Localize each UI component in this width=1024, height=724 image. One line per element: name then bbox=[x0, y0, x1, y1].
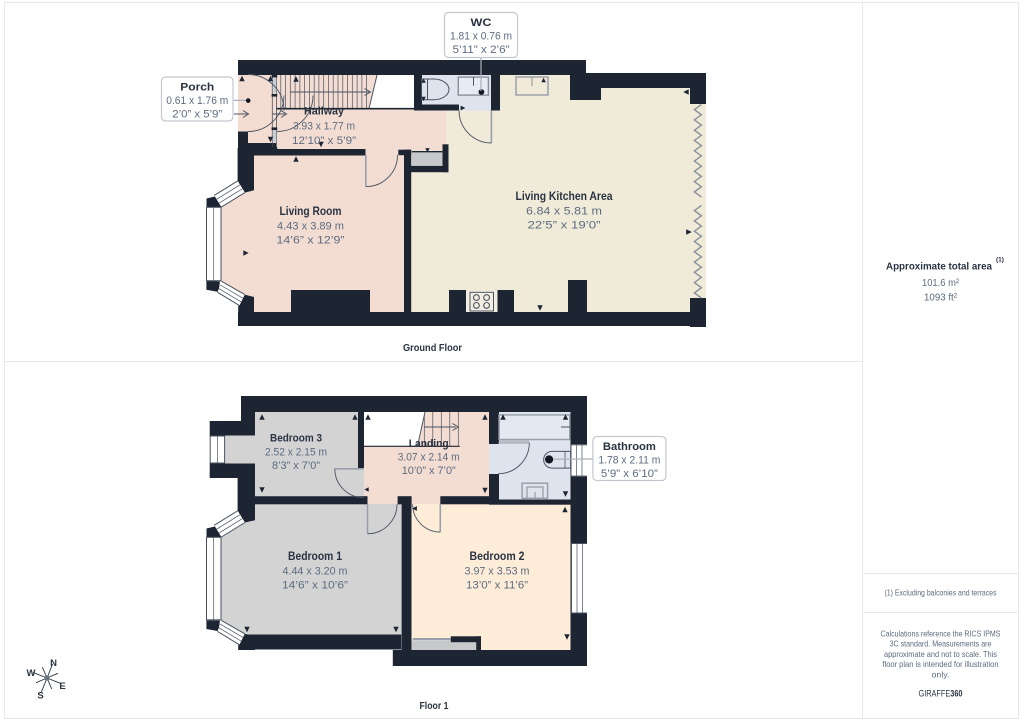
svg-text:22’5” x 19’0”: 22’5” x 19’0” bbox=[528, 220, 601, 232]
svg-text:3.97 x 3.53 m: 3.97 x 3.53 m bbox=[465, 566, 530, 578]
svg-text:2.52 x 2.15 m: 2.52 x 2.15 m bbox=[265, 447, 327, 459]
svg-text:Landing: Landing bbox=[409, 438, 449, 450]
svg-text:Bedroom 2: Bedroom 2 bbox=[470, 551, 525, 563]
svg-text:5’9” x 6’10”: 5’9” x 6’10” bbox=[601, 468, 658, 480]
svg-text:N: N bbox=[50, 658, 57, 669]
svg-text:13’0” x 11’6”: 13’0” x 11’6” bbox=[466, 580, 528, 592]
svg-text:3.93 x 1.77 m: 3.93 x 1.77 m bbox=[293, 121, 355, 133]
svg-text:5’11” x 2’6”: 5’11” x 2’6” bbox=[453, 44, 510, 56]
svg-text:(1): (1) bbox=[996, 257, 1004, 264]
svg-text:4.44 x 3.20 m: 4.44 x 3.20 m bbox=[283, 566, 348, 578]
svg-text:Floor 1: Floor 1 bbox=[420, 700, 449, 712]
svg-text:(1) Excluding balconies and te: (1) Excluding balconies and terraces bbox=[885, 589, 997, 598]
svg-text:1093 ft²: 1093 ft² bbox=[924, 293, 958, 304]
svg-text:Bedroom 1: Bedroom 1 bbox=[288, 551, 343, 563]
svg-text:approximate and not to scale.: approximate and not to scale. This bbox=[884, 649, 997, 659]
svg-text:Approximate total area: Approximate total area bbox=[886, 262, 992, 273]
svg-text:1.78 x 2.11 m: 1.78 x 2.11 m bbox=[598, 455, 660, 467]
svg-text:GIRAFFE360: GIRAFFE360 bbox=[919, 689, 963, 699]
svg-text:1.81 x 0.76 m: 1.81 x 0.76 m bbox=[450, 31, 512, 43]
svg-text:Porch: Porch bbox=[180, 82, 214, 94]
svg-text:12’10” x 5’9”: 12’10” x 5’9” bbox=[292, 135, 356, 147]
svg-text:8’3” x 7’0”: 8’3” x 7’0” bbox=[272, 460, 320, 472]
svg-text:10’0” x 7’0”: 10’0” x 7’0” bbox=[402, 465, 456, 477]
svg-text:Bedroom 3: Bedroom 3 bbox=[270, 433, 322, 445]
svg-text:Bathroom: Bathroom bbox=[603, 441, 656, 453]
svg-text:0.61 x 1.76 m: 0.61 x 1.76 m bbox=[166, 95, 228, 107]
svg-text:Ground Floor: Ground Floor bbox=[403, 342, 462, 354]
svg-text:2’0” x 5’9”: 2’0” x 5’9” bbox=[172, 109, 222, 121]
svg-text:101.6 m²: 101.6 m² bbox=[922, 278, 960, 289]
svg-text:floor plan is intended for ill: floor plan is intended for illustration bbox=[883, 659, 999, 669]
svg-text:14’6” x 12’9”: 14’6” x 12’9” bbox=[277, 235, 345, 247]
svg-text:Living Room: Living Room bbox=[280, 206, 342, 218]
svg-text:W: W bbox=[27, 668, 36, 679]
svg-text:Calculations reference the RIC: Calculations reference the RICS IPMS bbox=[881, 629, 1001, 639]
svg-text:14’6” x 10’6”: 14’6” x 10’6” bbox=[282, 580, 348, 592]
svg-text:3C standard. Measurements are: 3C standard. Measurements are bbox=[890, 639, 992, 649]
svg-text:S: S bbox=[37, 691, 43, 702]
svg-text:Living Kitchen Area: Living Kitchen Area bbox=[516, 191, 614, 203]
svg-text:E: E bbox=[59, 681, 65, 692]
svg-text:3.07 x 2.14 m: 3.07 x 2.14 m bbox=[398, 452, 460, 464]
svg-text:4.43 x 3.89 m: 4.43 x 3.89 m bbox=[277, 221, 344, 233]
svg-text:only.: only. bbox=[932, 669, 950, 679]
svg-text:6.84 x 5.81 m: 6.84 x 5.81 m bbox=[526, 206, 602, 218]
svg-text:Hallway: Hallway bbox=[304, 106, 345, 118]
svg-text:WC: WC bbox=[471, 17, 492, 29]
